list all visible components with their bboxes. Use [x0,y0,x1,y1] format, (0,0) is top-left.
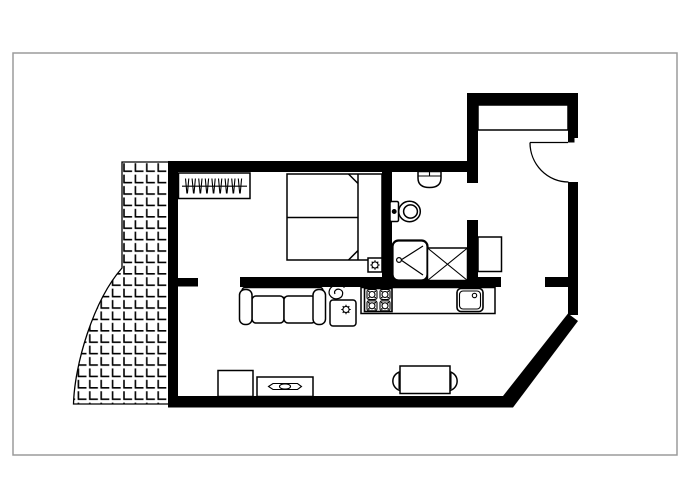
tv-on-stand [257,377,313,397]
wall-diagonal [503,314,578,408]
wall-hall-living [545,277,578,287]
built-in-closet [478,105,568,130]
hall-cabinet [478,237,502,272]
dining-table-set [393,366,457,394]
wall-door-nub [568,138,575,143]
floor-plan-page [0,0,700,500]
wall-bedroom-bathroom [382,172,392,287]
kitchen [361,288,495,314]
dining-table [400,366,450,394]
wall-entrance-top [467,93,578,105]
balcony [74,162,174,404]
kitchen-sink [457,289,483,312]
wall-entrance-left [467,93,478,183]
toilet [390,201,420,221]
shower-cabin [393,241,428,281]
bedside-table-lamp [368,258,382,272]
entrance-door [530,143,569,183]
bathroom [390,172,468,281]
bedroom [179,173,383,272]
entrance-hall [478,105,568,272]
balcony-tiled-floor [74,162,174,404]
sofa [240,288,326,325]
tv-cabinet [218,371,253,397]
washbasin [418,172,441,188]
washing-machine [428,248,468,281]
wall-bottom [168,396,513,408]
wall-stub-bedroom-door [170,278,198,287]
floor-plan-drawing [0,0,700,500]
double-bed [287,174,382,260]
door-swing-arc [530,143,569,183]
wall-bathroom-right [467,220,478,287]
wall-right-upper [568,105,578,138]
potted-plant [329,285,344,299]
wall-right-lower [568,182,578,315]
wall-top [168,161,478,172]
wardrobe-with-hangers [179,173,251,199]
stove-four-burners [365,289,393,312]
side-table-with-lamp [330,300,356,326]
